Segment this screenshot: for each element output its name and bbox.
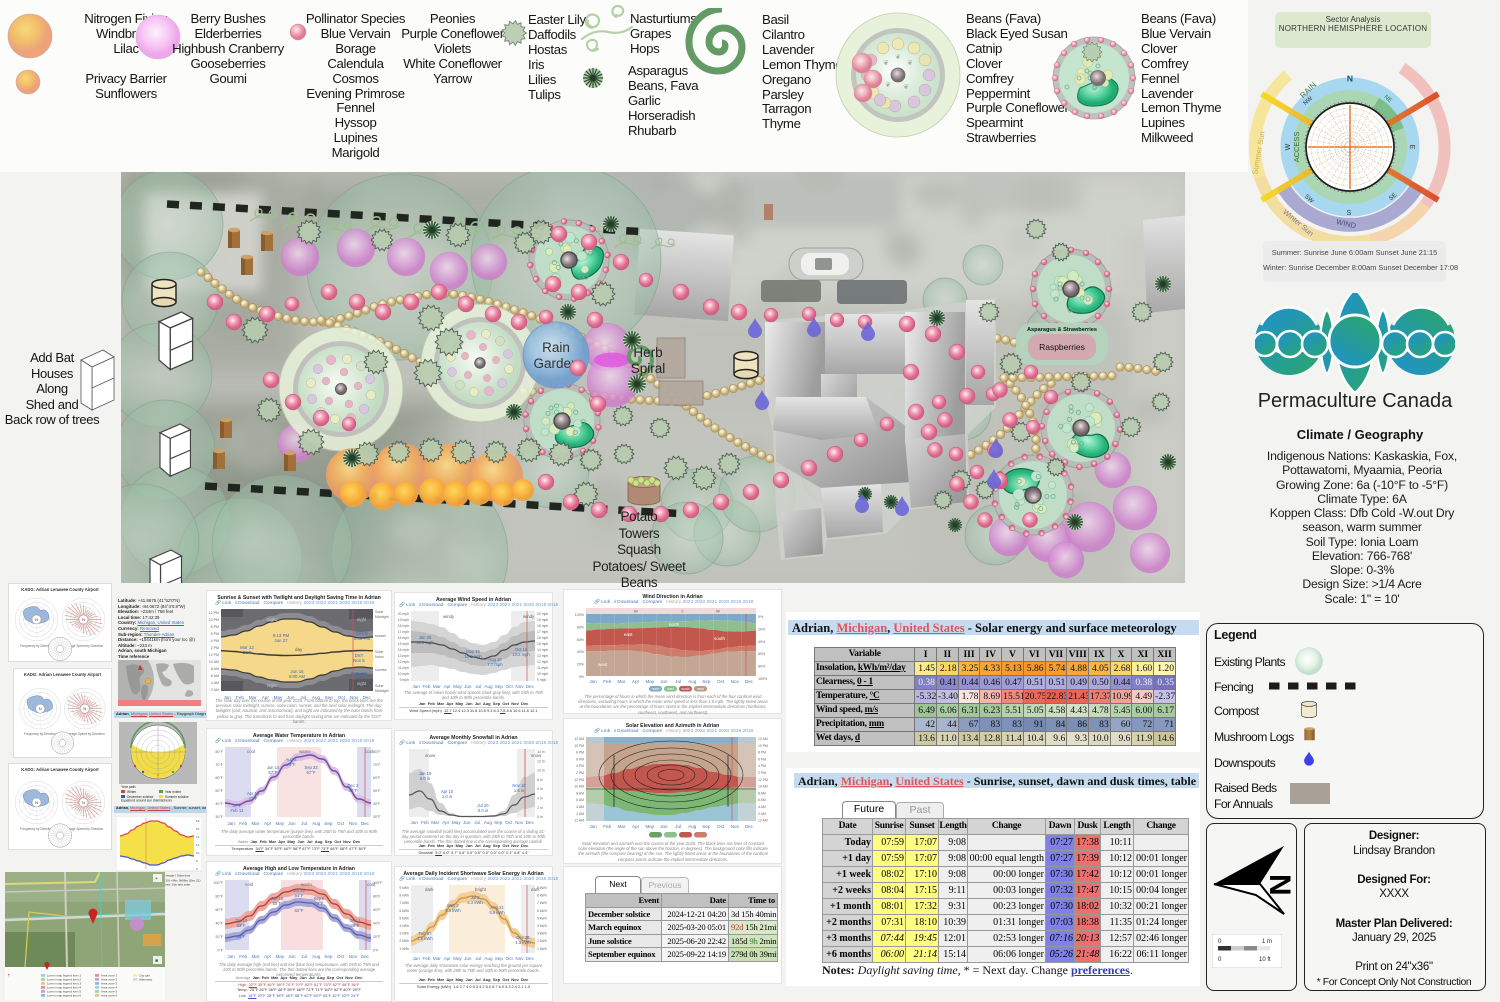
svg-text:10 AM: 10 AM xyxy=(574,785,584,789)
svg-text:Rain: Rain xyxy=(542,340,570,355)
svg-text:Oct: Oct xyxy=(717,679,725,684)
svg-text:N: N xyxy=(39,706,42,711)
svg-text:south: south xyxy=(714,636,726,641)
svg-text:Frequency by Direction: Frequency by Direction xyxy=(20,827,53,831)
svg-text:Dec: Dec xyxy=(361,821,370,826)
svg-text:80%: 80% xyxy=(577,625,585,629)
svg-text:2 in: 2 in xyxy=(537,806,543,810)
svg-text:Area zone 6: Area zone 6 xyxy=(101,994,118,998)
svg-text:3 kWh: 3 kWh xyxy=(537,932,547,936)
svg-text:6 AM: 6 AM xyxy=(211,674,219,678)
svg-text:Midnight: Midnight xyxy=(375,615,389,619)
svg-text:2 AM: 2 AM xyxy=(211,688,219,692)
svg-text:west: west xyxy=(697,687,704,691)
svg-text:■: ■ xyxy=(155,958,158,964)
svg-text:Jul: Jul xyxy=(301,954,307,959)
svg-text:100°F: 100°F xyxy=(213,881,223,885)
svg-text:Aug: Aug xyxy=(312,954,321,959)
svg-text:4 PM: 4 PM xyxy=(576,764,584,768)
svg-text:day: day xyxy=(295,647,303,652)
svg-text:Noon: Noon xyxy=(375,655,384,659)
svg-text:May: May xyxy=(275,821,284,826)
svg-text:Nov: Nov xyxy=(349,954,358,959)
svg-text:2 PM: 2 PM xyxy=(758,771,766,775)
svg-text:Aug: Aug xyxy=(688,679,697,684)
svg-text:north: north xyxy=(669,622,680,627)
svg-text:Midnight: Midnight xyxy=(375,689,389,693)
svg-text:40°F: 40°F xyxy=(215,802,223,806)
svg-text:18 mph: 18 mph xyxy=(398,624,409,628)
svg-text:Solar: Solar xyxy=(375,610,384,614)
svg-text:67°F: 67°F xyxy=(269,770,278,775)
svg-text:9 kWh: 9 kWh xyxy=(399,886,409,890)
svg-text:0°F: 0°F xyxy=(217,949,223,953)
svg-text:Aug: Aug xyxy=(484,684,493,689)
svg-text:Oct: Oct xyxy=(337,954,345,959)
svg-text:6 PM: 6 PM xyxy=(211,632,219,636)
svg-text:Sep: Sep xyxy=(324,954,333,959)
svg-text:Feb: Feb xyxy=(423,956,431,961)
svg-text:❦: ❦ xyxy=(883,60,889,67)
svg-text:80°F: 80°F xyxy=(373,750,381,754)
svg-text:4 kWh: 4 kWh xyxy=(537,924,547,928)
svg-text:N: N xyxy=(35,617,38,622)
svg-text:8 in: 8 in xyxy=(537,778,543,782)
svg-text:7 kWh: 7 kWh xyxy=(537,901,547,905)
svg-text:6 kWh: 6 kWh xyxy=(399,909,409,913)
svg-text:80°F: 80°F xyxy=(373,895,381,899)
svg-text:📍: 📍 xyxy=(7,974,11,978)
svg-text:Asparagus & Strawberries: Asparagus & Strawberries xyxy=(1027,327,1097,333)
svg-text:Nov: Nov xyxy=(349,821,358,826)
svg-text:Feb: Feb xyxy=(603,679,611,684)
svg-text:84°F: 84°F xyxy=(295,893,304,898)
svg-text:12 mph: 12 mph xyxy=(398,660,409,664)
svg-text:Jan: Jan xyxy=(589,679,597,684)
svg-text:4 AM: 4 AM xyxy=(576,805,584,809)
svg-text:8 AM: 8 AM xyxy=(576,791,584,795)
svg-text:Jan: Jan xyxy=(412,956,420,961)
svg-text:night: night xyxy=(357,681,367,686)
svg-text:1.0 in: 1.0 in xyxy=(442,794,453,799)
svg-text:5.6 kWh: 5.6 kWh xyxy=(445,908,461,913)
svg-text:0%: 0% xyxy=(758,615,764,619)
svg-text:Aug: Aug xyxy=(484,956,493,961)
svg-text:sunset: sunset xyxy=(375,634,386,638)
svg-text:W: W xyxy=(716,609,720,614)
svg-text:DST: DST xyxy=(243,650,252,655)
svg-text:47°F: 47°F xyxy=(249,796,258,801)
svg-text:6:00 AM: 6:00 AM xyxy=(289,674,305,679)
svg-text:Nov: Nov xyxy=(731,824,740,829)
svg-text:2 kWh: 2 kWh xyxy=(537,939,547,943)
svg-text:Sep: Sep xyxy=(495,684,504,689)
svg-text:Jun: Jun xyxy=(660,824,668,829)
svg-text:Jul: Jul xyxy=(475,956,481,961)
svg-text:3 kWh: 3 kWh xyxy=(399,932,409,936)
svg-text:42°F: 42°F xyxy=(349,788,358,793)
svg-text:5:00 PM: 5:00 PM xyxy=(354,636,371,641)
svg-text:17 mph: 17 mph xyxy=(398,630,409,634)
svg-text:5 kWh: 5 kWh xyxy=(399,916,409,920)
svg-text:Jul: Jul xyxy=(475,684,481,689)
svg-text:Dec 6: Dec 6 xyxy=(353,676,365,681)
svg-text:6 AM: 6 AM xyxy=(758,798,766,802)
svg-text:8 PM: 8 PM xyxy=(211,625,219,629)
svg-text:2 AM: 2 AM xyxy=(576,812,584,816)
svg-text:❦: ❦ xyxy=(895,54,901,61)
svg-text:Jan: Jan xyxy=(410,820,418,825)
svg-text:4 in: 4 in xyxy=(537,797,543,801)
svg-text:Dec: Dec xyxy=(526,956,535,961)
svg-text:Mar: Mar xyxy=(433,684,441,689)
svg-text:❦: ❦ xyxy=(907,60,913,67)
svg-text:4 kWh: 4 kWh xyxy=(399,924,409,928)
svg-text:12 AM: 12 AM xyxy=(574,819,584,823)
svg-text:70°F: 70°F xyxy=(215,763,223,767)
svg-text:60%: 60% xyxy=(758,652,766,656)
svg-text:Feb: Feb xyxy=(239,821,247,826)
svg-text:38°F: 38°F xyxy=(351,923,360,928)
svg-text:Dec: Dec xyxy=(361,954,370,959)
svg-text:6 in: 6 in xyxy=(537,787,543,791)
svg-text:Year path:: Year path: xyxy=(121,785,136,789)
svg-text:Oct: Oct xyxy=(506,684,514,689)
svg-text:10.2 mph: 10.2 mph xyxy=(464,654,482,659)
svg-text:12 PM: 12 PM xyxy=(209,653,219,657)
svg-text:1.3 kWh: 1.3 kWh xyxy=(515,940,531,945)
svg-text:14: 14 xyxy=(196,835,200,839)
svg-text:1.6 in: 1.6 in xyxy=(514,788,525,793)
svg-text:windy: windy xyxy=(443,614,455,619)
svg-text:Equations around sun (hemisphe: Equations around sun (hemisphere) xyxy=(121,799,172,803)
svg-text:13 mph: 13 mph xyxy=(398,654,409,658)
svg-text:60°F: 60°F xyxy=(373,776,381,780)
svg-text:0 in: 0 in xyxy=(537,815,543,819)
svg-text:11.9 mph: 11.9 mph xyxy=(416,640,434,645)
svg-text:Year extent: Year extent xyxy=(165,790,181,794)
svg-text:0%: 0% xyxy=(579,675,585,679)
svg-text:14 mph: 14 mph xyxy=(537,648,548,652)
svg-text:9 kWh: 9 kWh xyxy=(537,886,547,890)
svg-text:12 PM: 12 PM xyxy=(574,778,584,782)
svg-text:N: N xyxy=(83,706,86,711)
svg-text:18 mph: 18 mph xyxy=(537,624,548,628)
svg-text:Oct: Oct xyxy=(505,820,513,825)
svg-text:1 kWh: 1 kWh xyxy=(537,947,547,951)
svg-text:18: 18 xyxy=(196,819,200,823)
svg-text:S: S xyxy=(1347,210,1352,217)
svg-text:10 AM: 10 AM xyxy=(209,660,219,664)
svg-text:4 AM: 4 AM xyxy=(758,805,766,809)
svg-text:Jul: Jul xyxy=(675,679,681,684)
svg-text:Jul: Jul xyxy=(675,824,681,829)
svg-text:Dec: Dec xyxy=(745,679,754,684)
svg-text:Sep: Sep xyxy=(324,821,333,826)
svg-text:78°F: 78°F xyxy=(315,901,324,906)
svg-text:1 kWh: 1 kWh xyxy=(399,947,409,951)
svg-text:Solar: Solar xyxy=(375,650,384,654)
svg-text:10 PM: 10 PM xyxy=(209,618,219,622)
svg-text:Solar: Solar xyxy=(375,684,384,688)
svg-text:5 kWh: 5 kWh xyxy=(537,916,547,920)
svg-text:12 in: 12 in xyxy=(537,759,545,763)
svg-text:50°F: 50°F xyxy=(373,789,381,793)
svg-text:6 PM: 6 PM xyxy=(758,757,766,761)
svg-text:Nov: Nov xyxy=(515,820,524,825)
svg-text:14 mph: 14 mph xyxy=(398,648,409,652)
svg-text:12 AM: 12 AM xyxy=(758,819,768,823)
svg-text:80°F: 80°F xyxy=(215,750,223,754)
svg-text:Herb: Herb xyxy=(633,345,662,360)
svg-text:Nov: Nov xyxy=(731,679,740,684)
svg-text:Mar: Mar xyxy=(617,679,625,684)
svg-text:20 mph: 20 mph xyxy=(398,612,409,616)
svg-text:1.6 kWh: 1.6 kWh xyxy=(417,936,433,941)
svg-text:2 PM: 2 PM xyxy=(576,771,584,775)
svg-text:Oct: Oct xyxy=(506,956,514,961)
svg-text:80%: 80% xyxy=(758,665,766,669)
svg-text:ACCESS: ACCESS xyxy=(1292,132,1301,163)
svg-text:20%: 20% xyxy=(577,663,585,667)
svg-text:40%: 40% xyxy=(577,650,585,654)
svg-text:cool: cool xyxy=(247,749,255,754)
svg-text:8 PM: 8 PM xyxy=(576,751,584,755)
svg-text:8 AM: 8 AM xyxy=(211,667,219,671)
svg-text:15 mph: 15 mph xyxy=(398,642,409,646)
svg-text:7.7 mph: 7.7 mph xyxy=(487,662,503,667)
svg-text:sunrise: sunrise xyxy=(375,668,387,672)
svg-text:Nov: Nov xyxy=(515,956,524,961)
svg-text:W: W xyxy=(634,609,638,614)
svg-text:Mar: Mar xyxy=(431,820,439,825)
svg-text:Aug: Aug xyxy=(484,820,493,825)
svg-text:10: 10 xyxy=(196,851,200,855)
svg-text:40°F: 40°F xyxy=(373,802,381,806)
svg-text:2 kWh: 2 kWh xyxy=(399,939,409,943)
svg-text:May: May xyxy=(453,956,462,961)
svg-text:5.6 kWh: 5.6 kWh xyxy=(489,910,505,915)
svg-text:17 mph: 17 mph xyxy=(537,630,548,634)
svg-text:Feb: Feb xyxy=(603,824,611,829)
svg-text:Waterway: Waterway xyxy=(139,978,153,982)
svg-text:100%: 100% xyxy=(575,613,585,617)
svg-text:Jul: Jul xyxy=(474,820,480,825)
svg-text:40%: 40% xyxy=(758,640,766,644)
svg-text:Jun: Jun xyxy=(464,684,472,689)
svg-text:10 ft: 10 ft xyxy=(1259,957,1271,963)
svg-text:Apr: Apr xyxy=(444,956,452,961)
svg-text:7 kWh: 7 kWh xyxy=(399,901,409,905)
svg-text:N: N xyxy=(35,800,38,805)
svg-text:Apr: Apr xyxy=(632,679,640,684)
svg-text:Raspberries: Raspberries xyxy=(1039,342,1085,352)
svg-text:Spiral: Spiral xyxy=(631,361,666,376)
svg-text:west: west xyxy=(598,662,608,667)
svg-text:Feb: Feb xyxy=(423,684,431,689)
svg-text:1 m: 1 m xyxy=(1262,939,1272,945)
svg-text:Apr: Apr xyxy=(632,824,640,829)
svg-text:10 in: 10 in xyxy=(537,769,545,773)
svg-text:8 PM: 8 PM xyxy=(758,751,766,755)
svg-text:May: May xyxy=(645,679,654,684)
svg-text:Mar: Mar xyxy=(251,821,259,826)
svg-text:W: W xyxy=(1285,143,1292,150)
svg-text:60°F: 60°F xyxy=(373,908,381,912)
svg-text:10 AM: 10 AM xyxy=(758,785,768,789)
svg-text:Apr: Apr xyxy=(264,954,272,959)
svg-text:12 AM: 12 AM xyxy=(758,737,768,741)
svg-text:Oct: Oct xyxy=(337,821,345,826)
svg-text:Feb: Feb xyxy=(421,820,429,825)
svg-text:70°F: 70°F xyxy=(373,763,381,767)
svg-text:Jun: Jun xyxy=(288,821,296,826)
svg-text:19°F: 19°F xyxy=(237,934,246,939)
svg-text:south: south xyxy=(681,687,689,691)
svg-text:N: N xyxy=(1263,874,1292,896)
svg-text:Nov: Nov xyxy=(515,684,524,689)
svg-text:May: May xyxy=(645,824,654,829)
svg-text:S: S xyxy=(681,609,684,614)
svg-text:10 mph: 10 mph xyxy=(398,672,409,676)
svg-text:N: N xyxy=(82,800,85,805)
svg-text:N: N xyxy=(82,617,85,622)
svg-text:40°F: 40°F xyxy=(215,922,223,926)
svg-text:19 mph: 19 mph xyxy=(398,618,409,622)
svg-text:Aug: Aug xyxy=(312,821,321,826)
svg-text:Jun: Jun xyxy=(464,956,472,961)
svg-text:62°F: 62°F xyxy=(295,908,304,913)
svg-text:10 PM: 10 PM xyxy=(758,744,768,748)
svg-text:13 mph: 13 mph xyxy=(537,654,548,658)
svg-text:19 mph: 19 mph xyxy=(537,618,548,622)
svg-text:Mar: Mar xyxy=(617,824,625,829)
svg-text:Jun: Jun xyxy=(660,679,668,684)
svg-text:Oct: Oct xyxy=(717,824,725,829)
svg-text:20%: 20% xyxy=(758,627,766,631)
svg-text:6.0 in: 6.0 in xyxy=(420,776,431,781)
svg-text:11 mph: 11 mph xyxy=(398,666,409,670)
svg-text:20°F: 20°F xyxy=(215,935,223,939)
svg-text:74°F: 74°F xyxy=(287,762,296,767)
svg-text:9 mph: 9 mph xyxy=(400,678,410,682)
svg-text:east: east xyxy=(667,687,673,691)
svg-text:60°F: 60°F xyxy=(215,908,223,912)
svg-text:night: night xyxy=(267,683,278,688)
svg-text:❦: ❦ xyxy=(885,82,891,89)
svg-text:12 mph: 12 mph xyxy=(537,660,548,664)
svg-text:8 kWh: 8 kWh xyxy=(399,894,409,898)
svg-text:60%: 60% xyxy=(577,638,585,642)
svg-text:20 mph: 20 mph xyxy=(537,612,548,616)
svg-text:night: night xyxy=(357,617,367,622)
svg-text:12: 12 xyxy=(196,843,200,847)
svg-text:Sep: Sep xyxy=(494,820,503,825)
svg-text:❦: ❦ xyxy=(903,84,909,91)
svg-text:Winter: Winter xyxy=(127,790,137,794)
svg-text:12 PM: 12 PM xyxy=(758,778,768,782)
svg-text:9 mph: 9 mph xyxy=(537,678,547,682)
svg-text:16 mph: 16 mph xyxy=(537,636,548,640)
svg-text:12 PM: 12 PM xyxy=(209,611,219,615)
svg-text:2 PM: 2 PM xyxy=(211,646,219,650)
svg-text:Dec: Dec xyxy=(526,684,535,689)
svg-text:Jun 27: Jun 27 xyxy=(274,638,288,643)
svg-text:10.2 mph: 10.2 mph xyxy=(512,652,530,657)
svg-text:100%: 100% xyxy=(758,677,768,681)
svg-text:Jun: Jun xyxy=(463,820,471,825)
svg-text:4 PM: 4 PM xyxy=(758,764,766,768)
svg-text:67°F: 67°F xyxy=(307,770,316,775)
svg-text:Frequency by Direction: Frequency by Direction xyxy=(24,732,57,736)
svg-text:snow: snow xyxy=(425,753,436,758)
svg-text:8 kWh: 8 kWh xyxy=(537,894,547,898)
svg-text:cool: cool xyxy=(365,749,373,754)
svg-text:E: E xyxy=(1408,145,1415,150)
svg-text:40°F: 40°F xyxy=(373,922,381,926)
svg-text:8 AM: 8 AM xyxy=(758,791,766,795)
svg-text:May: May xyxy=(275,954,284,959)
svg-text:80°F: 80°F xyxy=(273,901,282,906)
svg-text:warm: warm xyxy=(301,882,312,887)
svg-text:0°F: 0°F xyxy=(373,949,379,953)
svg-text:20°F: 20°F xyxy=(373,935,381,939)
svg-text:50°F: 50°F xyxy=(215,789,223,793)
svg-text:cold: cold xyxy=(245,882,254,887)
svg-text:30°F: 30°F xyxy=(215,815,223,819)
svg-text:Dec: Dec xyxy=(745,824,754,829)
svg-text:80°F: 80°F xyxy=(215,895,223,899)
svg-text:4 PM: 4 PM xyxy=(211,639,219,643)
svg-text:Mar: Mar xyxy=(251,954,259,959)
svg-text:14 in: 14 in xyxy=(537,750,545,754)
svg-text:6 AM: 6 AM xyxy=(576,798,584,802)
svg-text:Nov 5: Nov 5 xyxy=(353,658,365,663)
svg-text:Jun: Jun xyxy=(288,954,296,959)
svg-text:33°F: 33°F xyxy=(237,923,246,928)
svg-text:6 PM: 6 PM xyxy=(576,757,584,761)
svg-text:east: east xyxy=(624,632,633,637)
svg-text:30°F: 30°F xyxy=(373,815,381,819)
svg-text:10 PM: 10 PM xyxy=(574,744,584,748)
svg-text:Apr: Apr xyxy=(444,684,452,689)
svg-text:night: night xyxy=(267,617,278,622)
svg-text:dark: dark xyxy=(425,887,434,892)
svg-text:May: May xyxy=(452,820,461,825)
svg-text:Mar: Mar xyxy=(433,956,441,961)
svg-text:Sep: Sep xyxy=(702,679,711,684)
svg-text:Jan: Jan xyxy=(227,954,235,959)
svg-text:6 kWh: 6 kWh xyxy=(537,909,547,913)
svg-text:Jul: Jul xyxy=(301,821,307,826)
svg-text:60°F: 60°F xyxy=(215,776,223,780)
svg-text:Apr: Apr xyxy=(442,820,450,825)
svg-text:Dec: Dec xyxy=(526,820,535,825)
svg-text:6.3 kWh: 6.3 kWh xyxy=(467,900,483,905)
svg-text:Sep: Sep xyxy=(495,956,504,961)
svg-text:+: + xyxy=(155,876,158,882)
svg-text:N: N xyxy=(1347,74,1353,84)
svg-text:Jan: Jan xyxy=(227,821,235,826)
svg-text:warm: warm xyxy=(299,749,310,754)
svg-text:bright: bright xyxy=(475,887,487,892)
svg-text:Feb 13: Feb 13 xyxy=(230,808,244,813)
svg-text:16: 16 xyxy=(196,827,200,831)
svg-text:100°F: 100°F xyxy=(373,881,383,885)
svg-text:Lorem map legend item 6: Lorem map legend item 6 xyxy=(47,994,81,998)
svg-text:10 mph: 10 mph xyxy=(537,672,548,676)
svg-text:Apr: Apr xyxy=(264,821,272,826)
